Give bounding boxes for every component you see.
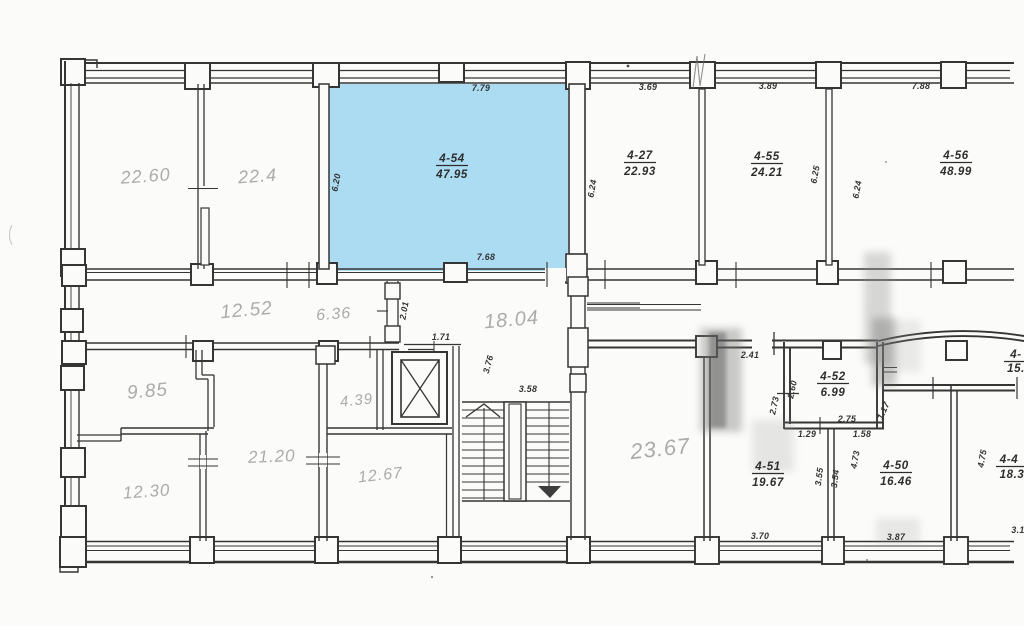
svg-text:4-56: 4-56 bbox=[942, 150, 968, 162]
svg-text:47.95: 47.95 bbox=[435, 169, 468, 181]
svg-text:3.87: 3.87 bbox=[887, 532, 906, 542]
svg-text:2.75: 2.75 bbox=[837, 414, 856, 424]
svg-text:4-54: 4-54 bbox=[438, 153, 464, 165]
svg-text:4-55: 4-55 bbox=[753, 151, 779, 163]
svg-text:2.41: 2.41 bbox=[740, 350, 759, 360]
svg-text:7.79: 7.79 bbox=[472, 83, 490, 93]
svg-text:3.89: 3.89 bbox=[759, 81, 777, 91]
svg-text:4-52: 4-52 bbox=[819, 371, 845, 383]
svg-text:19.67: 19.67 bbox=[752, 477, 784, 489]
svg-text:12.30: 12.30 bbox=[122, 480, 171, 502]
svg-text:1.29: 1.29 bbox=[798, 429, 816, 439]
svg-text:3.69: 3.69 bbox=[639, 82, 657, 92]
svg-text:4-27: 4-27 bbox=[626, 150, 652, 162]
svg-text:15.: 15. bbox=[1007, 363, 1024, 375]
svg-text:6.99: 6.99 bbox=[821, 387, 846, 399]
svg-text:4.39: 4.39 bbox=[339, 390, 374, 410]
svg-text:22.60: 22.60 bbox=[119, 164, 171, 188]
svg-text:16.46: 16.46 bbox=[880, 476, 912, 488]
svg-text:4-4: 4-4 bbox=[999, 454, 1018, 466]
svg-text:21.20: 21.20 bbox=[247, 446, 296, 467]
svg-text:3.58: 3.58 bbox=[519, 384, 537, 394]
svg-text:24.21: 24.21 bbox=[750, 167, 783, 179]
svg-text:6.36: 6.36 bbox=[316, 305, 352, 324]
svg-text:3.1: 3.1 bbox=[1011, 525, 1024, 535]
svg-text:4-: 4- bbox=[1009, 349, 1021, 361]
svg-text:22.93: 22.93 bbox=[623, 166, 656, 178]
svg-text:7.68: 7.68 bbox=[477, 252, 495, 262]
svg-text:22.4: 22.4 bbox=[236, 165, 277, 188]
svg-text:4-51: 4-51 bbox=[754, 461, 780, 473]
svg-text:4-50: 4-50 bbox=[882, 460, 908, 472]
svg-text:7.88: 7.88 bbox=[912, 81, 930, 91]
svg-text:1.71: 1.71 bbox=[432, 332, 450, 342]
svg-text:3.70: 3.70 bbox=[751, 531, 769, 541]
svg-text:9.85: 9.85 bbox=[126, 379, 169, 403]
svg-text:1.58: 1.58 bbox=[853, 429, 871, 439]
svg-text:48.99: 48.99 bbox=[939, 166, 972, 178]
svg-text:18.3: 18.3 bbox=[1000, 469, 1024, 481]
